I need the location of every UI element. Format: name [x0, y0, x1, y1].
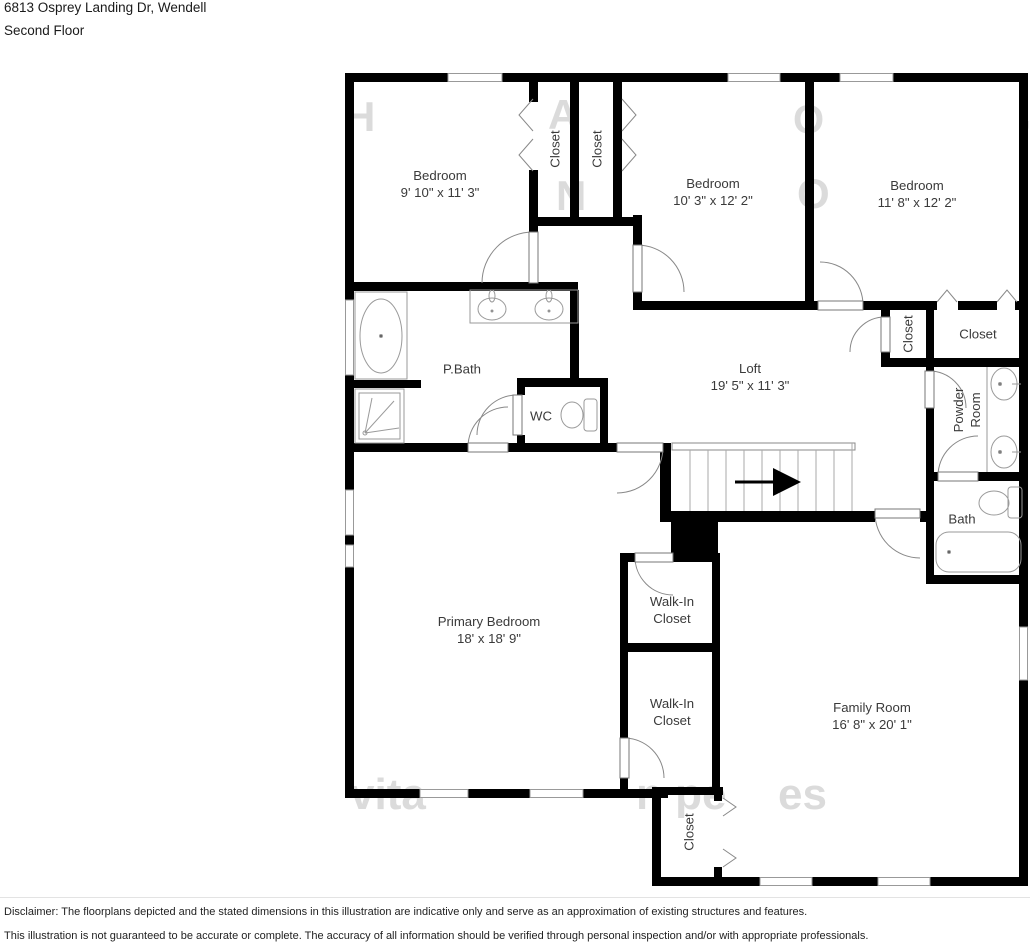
sink-icons-powder-room: [987, 367, 1021, 472]
door-leaf: [513, 395, 522, 435]
door-arc-family-room: [875, 513, 920, 558]
door-arc-wc: [477, 395, 517, 435]
floorplan-svg: [0, 0, 1030, 946]
shower-icon: [355, 389, 404, 443]
door-leaf: [881, 317, 890, 352]
door-arc-primary-bath: [468, 407, 508, 447]
door-leaf: [818, 301, 863, 310]
double-sink-vanity-icon: [470, 290, 578, 323]
stairs-direction-arrow-icon: [735, 468, 801, 496]
bathtub-icon-bath: [936, 532, 1021, 572]
door-arc-powder-room: [929, 371, 966, 408]
walls-layer: [345, 73, 1028, 886]
door-leaf: [875, 509, 920, 518]
door-leaf: [617, 443, 663, 452]
disclaimer-line-2: This illustration is not guaranteed to b…: [4, 930, 868, 942]
door-arc-bedroom-2: [637, 245, 684, 292]
door-arc-walk-in-closet-1: [635, 557, 673, 595]
disclaimer-line-1: Disclaimer: The floorplans depicted and …: [4, 906, 807, 918]
toilet-icon-wc: [561, 399, 597, 431]
door-leaf: [529, 232, 538, 283]
door-arc-primary-bedroom: [617, 447, 663, 493]
door-arc-bath: [938, 436, 978, 476]
bathtub-icon: [355, 292, 407, 379]
windows-layer: [346, 74, 1028, 886]
door-leaf: [635, 553, 673, 562]
door-leaf: [633, 245, 642, 292]
door-arc-walk-in-closet-2: [624, 738, 664, 778]
door-leaf: [468, 443, 508, 452]
footer-divider: [0, 897, 1030, 898]
door-arc-bedroom-1: [482, 232, 533, 283]
stairs: [672, 443, 855, 511]
door-arc-hall-closet: [850, 317, 885, 352]
door-leaf: [620, 738, 629, 778]
toilet-icon-bath: [979, 487, 1022, 518]
stairs-railing: [672, 443, 855, 450]
stairs-treads: [690, 443, 852, 511]
door-arc-bedroom-3: [820, 262, 863, 305]
door-leaf: [938, 472, 978, 481]
door-leaf: [925, 371, 934, 408]
